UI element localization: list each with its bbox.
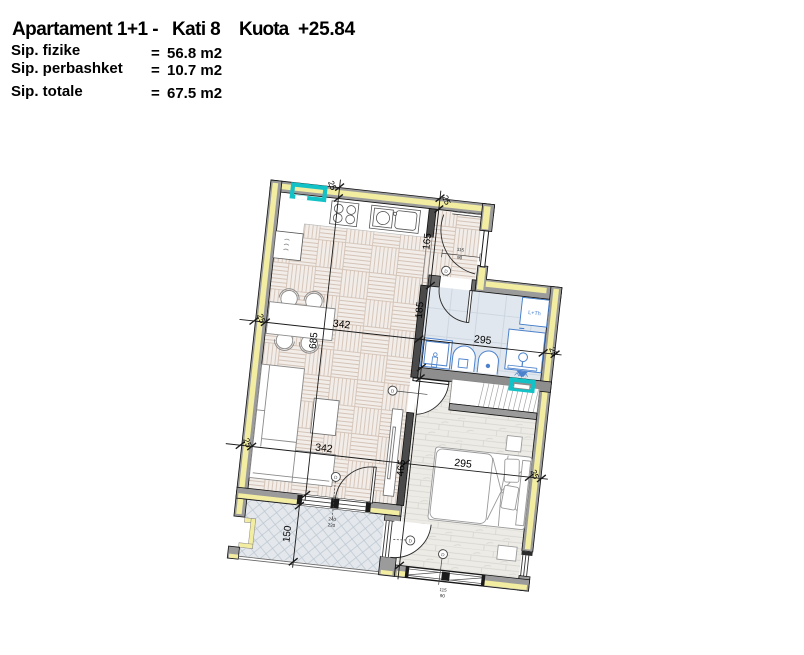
svg-text:67.5 m2: 67.5 m2 — [167, 85, 222, 102]
svg-text:Sip. perbashket: Sip. perbashket — [11, 60, 123, 77]
svg-text:90: 90 — [440, 593, 446, 599]
svg-text:+25.84: +25.84 — [298, 19, 356, 40]
svg-text:295: 295 — [454, 457, 473, 471]
svg-text:115: 115 — [457, 247, 465, 253]
svg-text:=: = — [151, 85, 160, 102]
svg-text:Apartament 1+1 -: Apartament 1+1 - — [12, 19, 158, 40]
svg-text:185: 185 — [414, 301, 427, 319]
svg-text:Kati 8: Kati 8 — [172, 19, 220, 40]
svg-text:240: 240 — [328, 516, 337, 522]
svg-text:10.7 m2: 10.7 m2 — [167, 62, 222, 79]
svg-text:342: 342 — [332, 318, 351, 332]
svg-text:Kuota: Kuota — [239, 19, 290, 40]
svg-text:342: 342 — [314, 441, 333, 455]
svg-text:165: 165 — [421, 232, 434, 250]
svg-text:685: 685 — [308, 331, 321, 349]
svg-text:Sip. totale: Sip. totale — [11, 83, 83, 100]
svg-text:=: = — [151, 45, 160, 62]
svg-text:115: 115 — [439, 587, 447, 593]
svg-text:56.8 m2: 56.8 m2 — [167, 45, 222, 62]
svg-text:=: = — [151, 62, 160, 79]
svg-text:150: 150 — [281, 525, 294, 543]
svg-text:465: 465 — [395, 459, 408, 477]
svg-text:220: 220 — [327, 522, 336, 528]
svg-text:Sip. fizike: Sip. fizike — [11, 42, 80, 59]
svg-text:295: 295 — [473, 333, 492, 347]
